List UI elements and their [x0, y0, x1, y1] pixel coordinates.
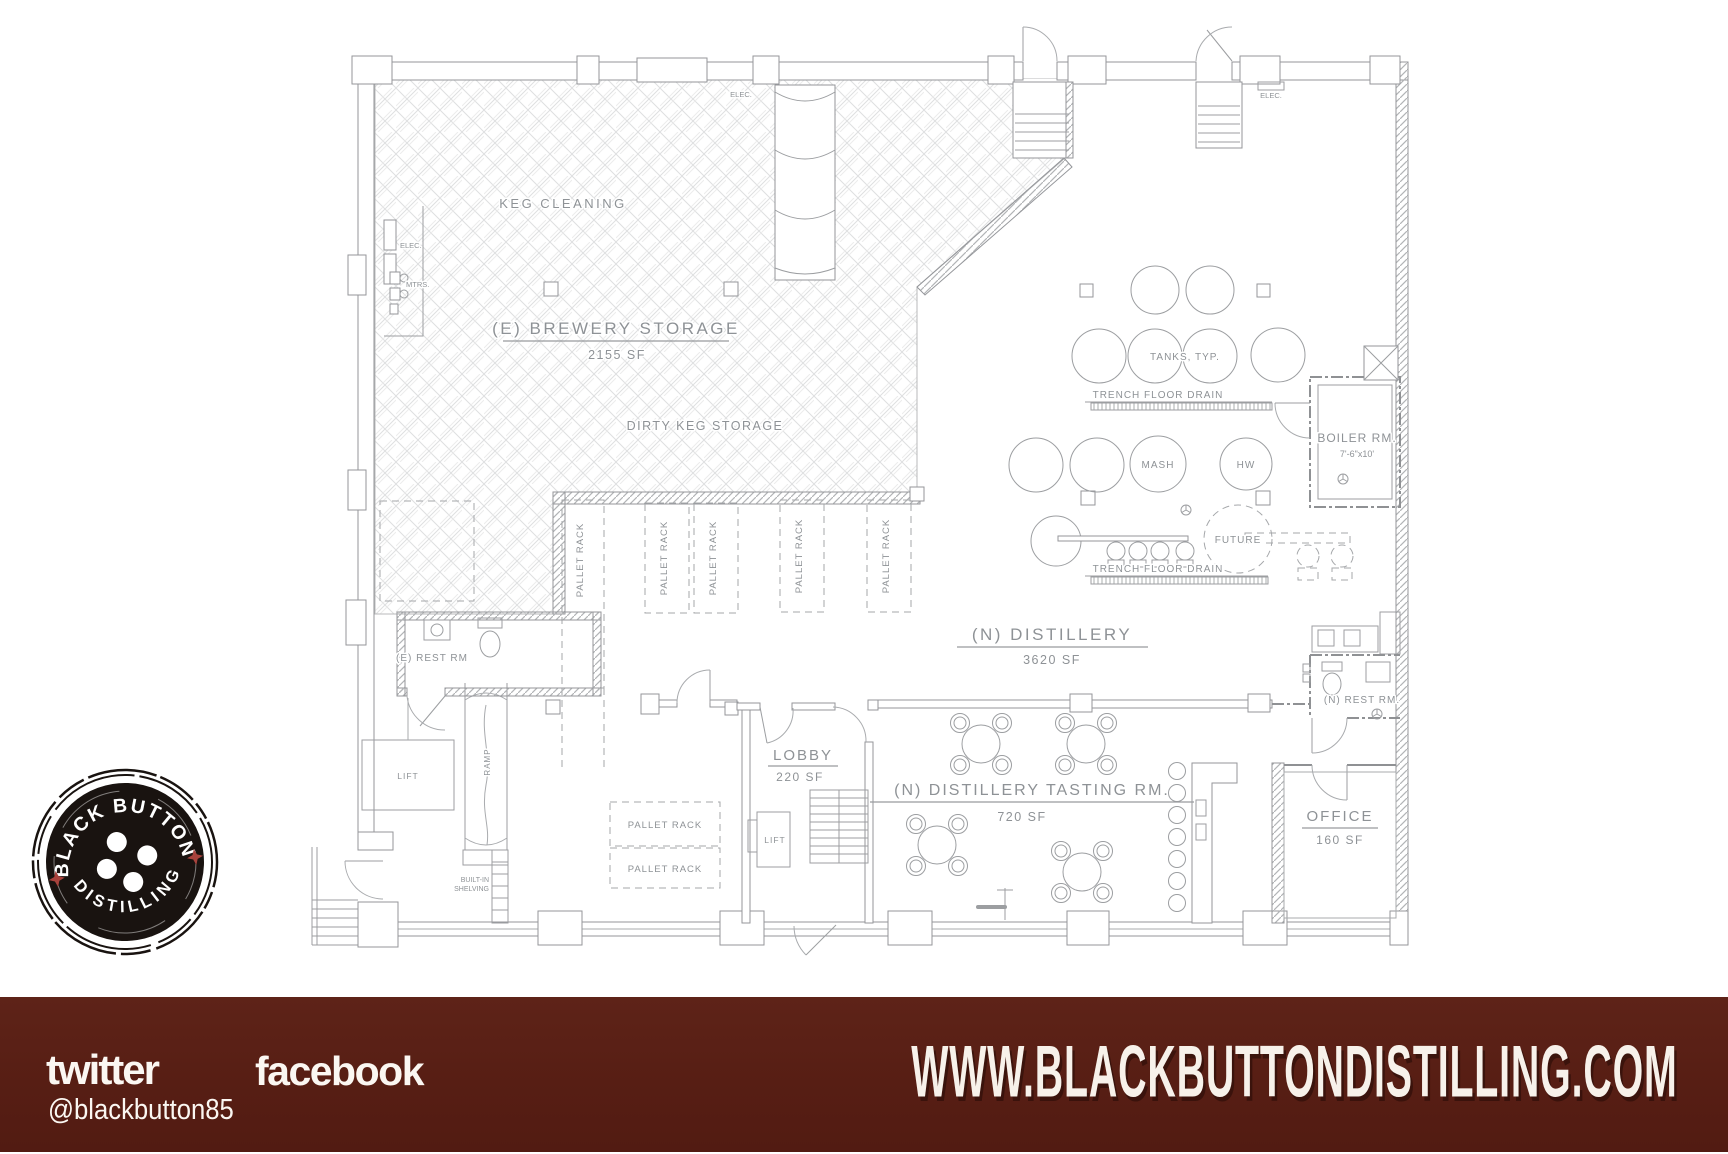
- twitter-handle: @blackbutton85: [48, 1094, 234, 1127]
- label-mash: MASH: [1142, 460, 1175, 471]
- label-trench-drain: TRENCH FLOOR DRAIN: [1093, 564, 1224, 575]
- door-swing-arc: [833, 707, 866, 742]
- floor-plan: KEG CLEANING (E) BREWERY STORAGE 2155 SF…: [0, 0, 1728, 997]
- door-swing-arc: [1312, 765, 1347, 800]
- restroom-existing: [397, 612, 601, 730]
- door-swing-arc: [767, 708, 793, 743]
- keg-washer: [775, 85, 835, 280]
- room-title-rest-rm-existing: (E) REST RM: [396, 653, 468, 664]
- label-future: FUTURE: [1215, 535, 1262, 546]
- bar-stool: [1169, 873, 1186, 890]
- door-leaf: [420, 696, 445, 726]
- door-swing-arc: [677, 670, 710, 703]
- toilet: [480, 631, 500, 657]
- door-swing-arc: [1312, 718, 1347, 753]
- room-title-rest-rm-new: (N) REST RM.: [1324, 695, 1400, 706]
- lobby-stairs: [810, 790, 868, 863]
- facebook-wordmark: facebook: [255, 1048, 423, 1095]
- label-pallet-rack: PALLET RACK: [794, 519, 805, 594]
- hatched-storage-area: [375, 79, 1073, 614]
- door-swing-arc: [345, 861, 383, 899]
- room-area-tasting: 720 SF: [997, 810, 1046, 824]
- label-lift: LIFT: [764, 835, 785, 845]
- room-area-distillery: 3620 SF: [1023, 653, 1081, 667]
- room-area-brewery-storage: 2155 SF: [588, 348, 646, 362]
- label-pallet-rack: PALLET RACK: [659, 521, 670, 596]
- label-elec: ELEC.: [1260, 91, 1282, 100]
- table: [951, 714, 1012, 775]
- door-swing-arc: [407, 696, 445, 730]
- coat-stand: [978, 888, 1013, 920]
- room-title-lobby: LOBBY: [773, 747, 833, 764]
- room-title-boiler: BOILER RM.: [1317, 431, 1396, 445]
- door-leaf: [760, 707, 767, 743]
- room-title-brewery-storage: (E) BREWERY STORAGE: [492, 319, 740, 338]
- label-mtrs: MTRS.: [406, 280, 429, 289]
- room-title-tasting: (N) DISTILLERY TASTING RM.: [894, 782, 1170, 799]
- label-pallet-rack: PALLET RACK: [881, 519, 892, 594]
- label-dirty-keg-storage: DIRTY KEG STORAGE: [627, 419, 784, 433]
- restroom-new: [1303, 612, 1400, 753]
- black-button-logo: BLACK BUTTON DISTILLING: [27, 764, 223, 960]
- door-swing-arc: [1023, 27, 1057, 61]
- label-lift: LIFT: [397, 771, 418, 781]
- table: [1056, 714, 1117, 775]
- label-pallet-rack: PALLET RACK: [575, 523, 586, 598]
- label-elec: ELEC.: [400, 241, 422, 250]
- room-area-lobby: 220 SF: [776, 770, 824, 784]
- label-trench-drain: TRENCH FLOOR DRAIN: [1093, 390, 1224, 401]
- room-title-office: OFFICE: [1307, 808, 1374, 825]
- room-title-distillery: (N) DISTILLERY: [972, 625, 1132, 644]
- label-ramp: RAMP: [483, 748, 492, 775]
- label-hw: HW: [1237, 460, 1256, 471]
- lobby-room: [641, 670, 878, 923]
- bar-stool: [1169, 851, 1186, 868]
- bar-stool: [1169, 807, 1186, 824]
- label-built-in-shelving: BUILT-IN: [461, 877, 489, 884]
- trench-drain: [1091, 403, 1272, 410]
- label-elec: ELEC.: [730, 90, 752, 99]
- door-swing-arc: [1275, 403, 1310, 438]
- twitter-wordmark: twitter: [46, 1046, 158, 1094]
- page: KEG CLEANING (E) BREWERY STORAGE 2155 SF…: [0, 0, 1728, 1154]
- room-area-office: 160 SF: [1316, 833, 1364, 847]
- label-pallet-rack: PALLET RACK: [708, 521, 719, 596]
- top-entry-stairwells: [1013, 27, 1284, 158]
- table: [907, 815, 968, 876]
- website-url: WWW.BLACKBUTTONDISTILLING.COM: [912, 1031, 1678, 1115]
- distillery-equipment: [1009, 266, 1353, 584]
- trench-drain: [1091, 577, 1268, 584]
- bar-counter: [1192, 763, 1237, 923]
- label-tanks-typ: TANKS, TYP.: [1150, 352, 1220, 363]
- door-swing-arc: [1196, 27, 1232, 61]
- label-pallet-rack: PALLET RACK: [628, 864, 703, 875]
- footer-bar: twitter @blackbutton85 facebook WWW.BLAC…: [0, 997, 1728, 1152]
- tasting-room: [877, 694, 1310, 923]
- toilet: [1323, 673, 1341, 695]
- bar-stool: [1169, 895, 1186, 912]
- door-leaf: [1207, 30, 1232, 61]
- bar-stool: [1169, 785, 1186, 802]
- sink: [1366, 662, 1390, 682]
- bar-stool: [1169, 763, 1186, 780]
- bar-stool: [1169, 829, 1186, 846]
- label-built-in-shelving: SHELVING: [454, 886, 489, 893]
- label-keg-cleaning: KEG CLEANING: [499, 196, 627, 211]
- label-pallet-rack: PALLET RACK: [628, 820, 703, 831]
- sink: [424, 620, 450, 640]
- table: [1052, 842, 1113, 903]
- room-dims-boiler: 7'-6"x10': [1340, 449, 1374, 459]
- boiler-room: [1275, 346, 1400, 507]
- built-in-shelving: [492, 850, 508, 923]
- logo-stamp-icon: BLACK BUTTON DISTILLING: [27, 764, 223, 960]
